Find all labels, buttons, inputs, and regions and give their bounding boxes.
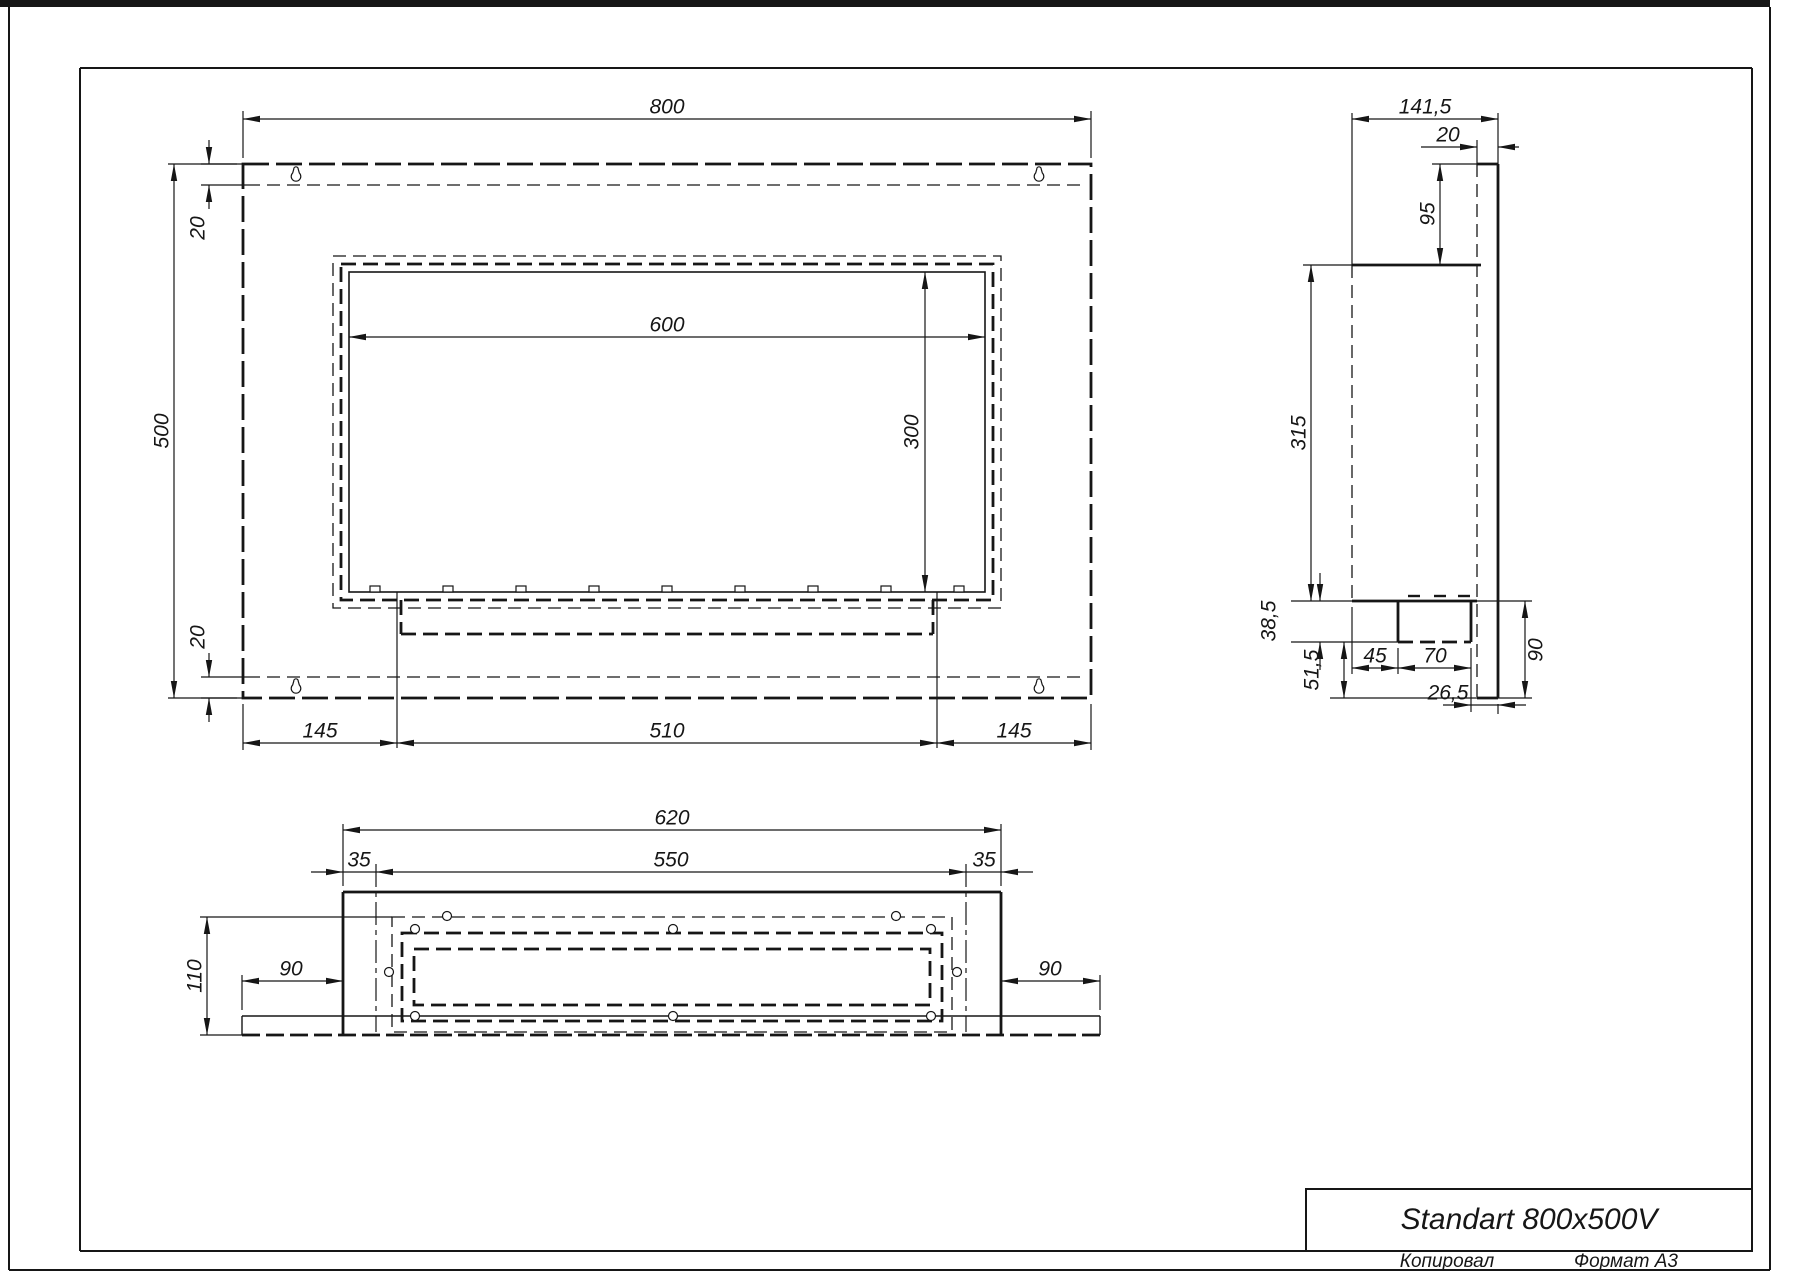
screw-hole [411,925,420,934]
dim-text: 20 [1435,124,1460,147]
dim-text: 145 [996,720,1031,743]
dim-text: 300 [901,414,924,449]
dim-flange-right: 90 [1001,958,1100,1010]
keyhole-slot-icon [291,679,301,693]
dim-text: 51,5 [1301,649,1324,690]
clip-tab [516,586,526,592]
keyhole-slot-icon [1034,679,1044,693]
screw-hole [443,912,452,921]
dim-panel-below-body: 90 [1471,601,1548,698]
dim-text: 90 [279,958,303,981]
opening-inner-hidden-box [414,949,930,1005]
footer-format-label: Формат А3 [1574,1251,1678,1272]
dim-text: 510 [649,720,684,743]
dim-inset-right: 35 [966,849,1033,872]
dim-box-width: 620 [343,807,1001,886]
dim-text: 26,5 [1427,682,1469,705]
clip-tab [662,586,672,592]
dim-text: 35 [347,849,371,872]
clip-tab [954,586,964,592]
dim-panel-thickness: 20 [1421,124,1519,164]
dim-front-width: 800 [243,96,1091,158]
front-panel-outline [243,164,1091,698]
dim-bottom-chain: 145 510 145 [243,704,1091,750]
dim-text: 35 [972,849,996,872]
dim-opening-width: 600 [349,314,985,337]
keyhole-slot-icon [291,167,301,181]
clip-tab [443,586,453,592]
keyhole-slot-icon [1034,167,1044,181]
clip-tab [881,586,891,592]
screw-hole [892,912,901,921]
glass-clip-tabs [370,586,964,592]
title-block: Standart 800x500V Копировал Формат А3 [1306,1189,1752,1272]
clip-tab [735,586,745,592]
dim-text: 70 [1423,645,1447,668]
screw-hole [669,1012,678,1021]
dim-text: 20 [187,216,210,241]
dim-text: 550 [653,849,688,872]
dim-text: 38,5 [1258,600,1281,641]
dim-opening-height: 300 [901,272,925,592]
dim-text: 620 [654,807,689,830]
drawing-title: Standart 800x500V [1401,1203,1661,1236]
paper-top-edge [0,0,1770,7]
dim-opening-width-bottom: 550 [376,849,966,872]
dim-panel-top-to-body: 95 [1417,164,1477,265]
footer-copied-label: Копировал [1400,1251,1495,1272]
screw-hole [669,925,678,934]
dim-front-height: 500 [151,164,237,698]
dim-text: 90 [1525,638,1548,662]
dim-text: 95 [1417,202,1440,226]
screw-hole [411,1012,420,1021]
bottom-view: 620 550 35 35 90 90 [184,807,1100,1035]
clip-tab [808,586,818,592]
dim-text: 20 [187,625,210,650]
screw-hole [927,1012,936,1021]
front-view: 800 500 20 20 600 300 [151,96,1091,750]
dim-body-height: 315 [1288,265,1352,601]
dim-top-inset: 20 [187,140,247,241]
dim-text: 315 [1288,415,1311,450]
side-view: 141,5 20 95 315 38,5 51,5 [1258,96,1548,714]
dim-text: 600 [649,314,684,337]
screw-hole [927,925,936,934]
clip-tab [589,586,599,592]
dim-text: 110 [184,959,207,993]
dim-text: 90 [1038,958,1062,981]
dim-bottom-inset: 20 [187,625,247,722]
drawing-sheet: Standart 800x500V Копировал Формат А3 [0,0,1800,1273]
opening-hidden-box [402,933,942,1021]
dim-text: 141,5 [1399,96,1452,119]
dim-total-depth: 141,5 [1352,96,1498,265]
dim-text: 145 [302,720,337,743]
clip-tab [370,586,380,592]
dim-text: 800 [649,96,684,119]
dim-text: 500 [151,413,174,448]
dim-flange-left: 90 [242,958,343,1010]
screw-hole [953,968,962,977]
screw-hole [385,968,394,977]
dim-text: 45 [1363,645,1387,668]
drawing-canvas: Standart 800x500V Копировал Формат А3 [0,0,1800,1273]
